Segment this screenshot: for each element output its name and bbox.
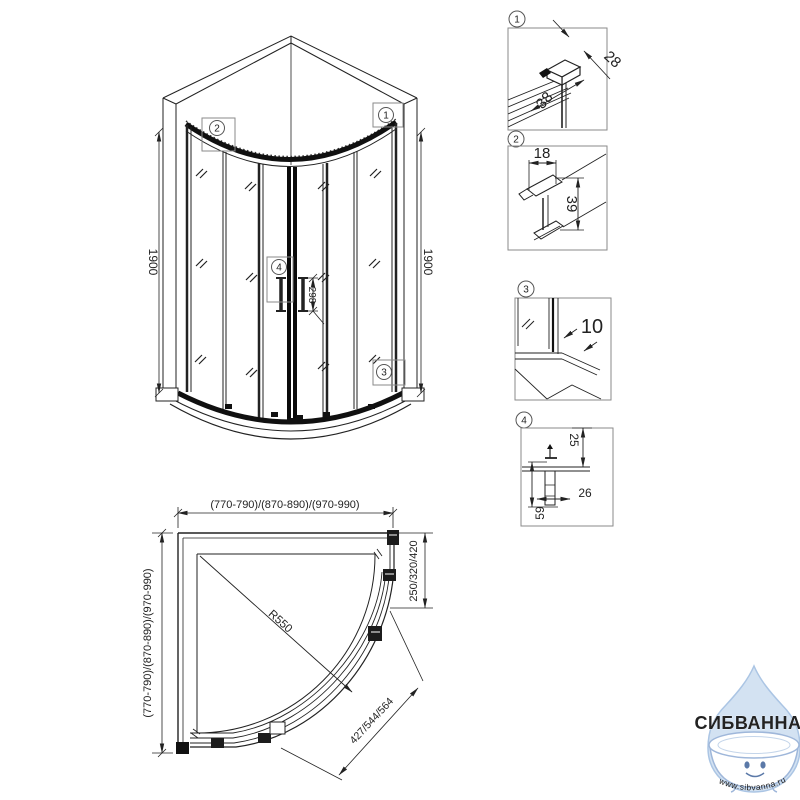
plan-entry-dimension [281, 611, 423, 780]
plan-width-top: (770-790)/(870-890)/(970-990) [210, 499, 359, 511]
detail-3: 3 10 [515, 281, 611, 400]
technical-drawing-page: 298 1900 1900 2 1 3 4 [0, 0, 800, 800]
dim-298: 298 [306, 287, 317, 304]
detail-2-dim-39: 39 [563, 196, 580, 213]
plan-radius: R550 [266, 608, 294, 635]
callout-4-label: 4 [276, 263, 282, 274]
detail-4: 4 25 26 59 [516, 412, 613, 526]
detail-2-drawing [519, 154, 606, 240]
plan-door-opening: 250/320/420 [408, 540, 420, 601]
shower-enclosure-drawing: 298 1900 1900 2 1 3 4 [0, 0, 800, 800]
detail-2-number: 2 [513, 135, 519, 146]
watermark-logo: СИБВАННА www.sibvanna.ru [695, 666, 800, 792]
front-elevation-view: 298 1900 1900 2 1 3 4 [146, 36, 435, 439]
detail-4-dim-26: 26 [578, 486, 592, 500]
detail-3-dim-10: 10 [581, 316, 603, 338]
detail-4-dim-59: 59 [533, 506, 547, 520]
door-handles [276, 278, 308, 311]
detail-1-dim-28: 28 [600, 48, 624, 72]
plan-view: (770-790)/(870-890)/(970-990) (770-790)/… [142, 499, 433, 780]
glass-stiles [187, 123, 396, 420]
plan-sliding-doors [190, 534, 394, 747]
detail-1-drawing [508, 20, 610, 128]
plan-depth-left: (770-790)/(870-890)/(970-990) [142, 568, 154, 717]
plan-tray [197, 554, 375, 733]
callout-1-label: 1 [383, 111, 389, 122]
callout-2-label: 2 [214, 124, 220, 135]
detail-3-number: 3 [523, 285, 529, 296]
detail-1-dim-38: 38 [533, 89, 557, 113]
dim-1900-left: 1900 [146, 249, 160, 276]
callout-3-label: 3 [381, 368, 387, 379]
detail-4-number: 4 [521, 416, 527, 427]
detail-3-drawing [515, 298, 601, 399]
detail-1-number: 1 [514, 15, 520, 26]
dim-1900-right: 1900 [421, 249, 435, 276]
detail-1: 1 28 38 [508, 11, 624, 130]
detail-4-dim-25: 25 [567, 433, 581, 447]
plan-depth-dimension [152, 529, 173, 757]
detail-2-dim-18: 18 [534, 145, 551, 162]
brand-name: СИБВАННА [695, 713, 800, 733]
detail-2: 2 18 39 [508, 131, 607, 250]
